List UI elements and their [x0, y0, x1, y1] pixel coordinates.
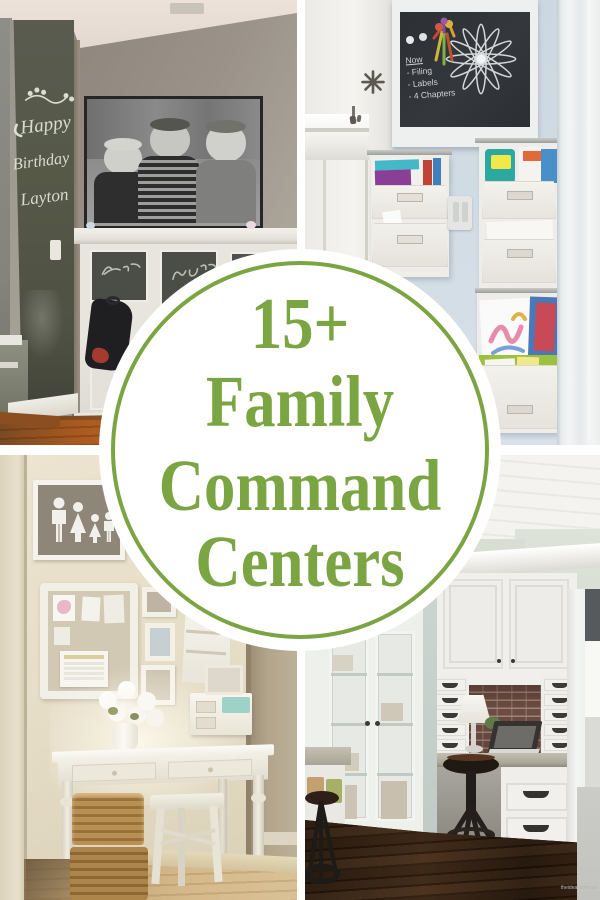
svg-text:Happy: Happy: [18, 112, 72, 139]
svg-text:Birthday: Birthday: [12, 149, 71, 174]
svg-text:Layton: Layton: [18, 185, 69, 210]
